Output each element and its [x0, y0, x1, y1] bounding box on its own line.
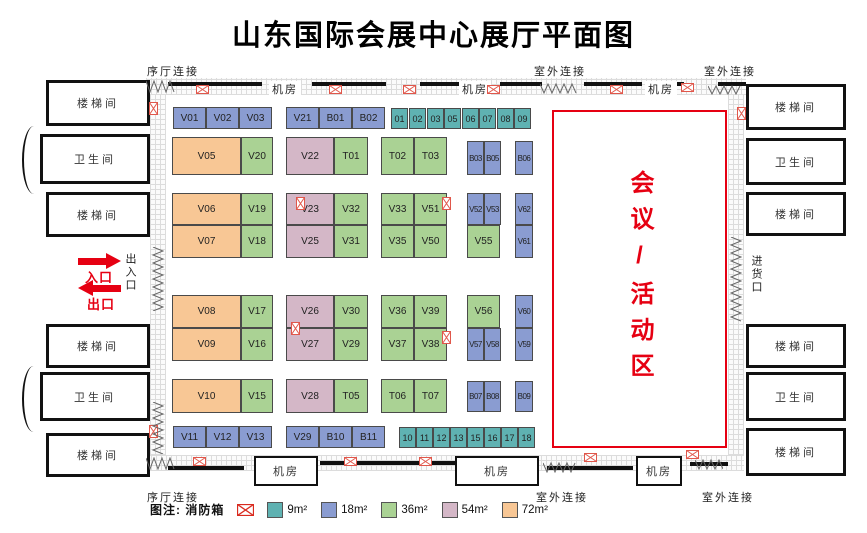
booth-b08[interactable]: B08 — [484, 381, 501, 412]
booth-b02[interactable]: B02 — [352, 107, 385, 129]
booth-v57[interactable]: V57 — [467, 328, 484, 361]
legend-label: 72m² — [522, 504, 548, 516]
fire-box-icon — [196, 85, 209, 94]
booth-15[interactable]: 15 — [467, 427, 484, 448]
booth-v08[interactable]: V08 — [172, 295, 241, 328]
booth-10[interactable]: 10 — [399, 427, 416, 448]
room-restroom-left-2: 卫生间 — [40, 372, 150, 421]
booth-v59[interactable]: V59 — [515, 328, 533, 361]
booth-18[interactable]: 18 — [518, 427, 535, 448]
booth-b01[interactable]: B01 — [319, 107, 352, 129]
legend-swatch — [442, 502, 458, 518]
booth-t06[interactable]: T06 — [381, 379, 414, 413]
fire-box-icon — [737, 107, 746, 120]
booth-b10[interactable]: B10 — [319, 426, 352, 448]
booth-17[interactable]: 17 — [501, 427, 518, 448]
booth-v17[interactable]: V17 — [241, 295, 273, 328]
booth-v11[interactable]: V11 — [173, 426, 206, 448]
booth-16[interactable]: 16 — [484, 427, 501, 448]
booth-v13[interactable]: V13 — [239, 426, 272, 448]
fire-box-icon — [584, 453, 597, 462]
booth-v61[interactable]: V61 — [515, 225, 533, 258]
legend-label: 18m² — [341, 504, 367, 516]
booth-02[interactable]: 02 — [409, 108, 426, 129]
booth-b03[interactable]: B03 — [467, 141, 484, 175]
booth-t07[interactable]: T07 — [414, 379, 447, 413]
booth-t01[interactable]: T01 — [334, 137, 368, 175]
machine-room-box: 机房 — [636, 456, 682, 486]
entrance-exit-label: 出入口 — [122, 253, 138, 292]
booth-v60[interactable]: V60 — [515, 295, 533, 328]
booth-05[interactable]: 05 — [444, 108, 461, 129]
room-restroom-right-2: 卫生间 — [746, 372, 846, 421]
booth-12[interactable]: 12 — [433, 427, 450, 448]
legend-swatch — [267, 502, 283, 518]
fire-box-icon — [681, 83, 694, 92]
booth-v12[interactable]: V12 — [206, 426, 239, 448]
booth-v05[interactable]: V05 — [172, 137, 241, 175]
legend-item-9m²: 9m² — [267, 502, 307, 518]
booth-v36[interactable]: V36 — [381, 295, 414, 328]
room-restroom-right-1: 卫生间 — [746, 138, 846, 185]
fire-box-icon — [344, 457, 357, 466]
label-outdoor-connect-bottom-2: 室外连接 — [702, 489, 754, 505]
legend-item-54m²: 54m² — [442, 502, 488, 518]
booth-v53[interactable]: V53 — [484, 193, 501, 225]
machine-room-box: 机房 — [455, 456, 539, 486]
legend-swatch — [381, 502, 397, 518]
booth-v58[interactable]: V58 — [484, 328, 501, 361]
legend-label: 54m² — [462, 504, 488, 516]
wall-segment — [320, 461, 456, 465]
booth-v23[interactable]: V23 — [286, 193, 334, 225]
floor-plan: 山东国际会展中心展厅平面图 会议/活动区 入口 出口 图注: 消防箱 9m²18… — [0, 0, 867, 533]
legend-swatch — [321, 502, 337, 518]
booth-v62[interactable]: V62 — [515, 193, 533, 225]
booth-v20[interactable]: V20 — [241, 137, 273, 175]
booth-08[interactable]: 08 — [497, 108, 514, 129]
booth-v16[interactable]: V16 — [241, 328, 273, 361]
wall-segment — [168, 82, 262, 86]
booth-v28[interactable]: V28 — [286, 379, 334, 413]
legend-label: 9m² — [287, 504, 307, 516]
fire-box-icon — [403, 85, 416, 94]
connector-zigzag — [543, 462, 577, 473]
booth-b09[interactable]: B09 — [515, 381, 533, 412]
booth-v15[interactable]: V15 — [241, 379, 273, 413]
fire-box-icon — [442, 331, 451, 344]
booth-v22[interactable]: V22 — [286, 137, 334, 175]
goods-entrance-label: 进货口 — [748, 255, 764, 294]
label-outdoor-connect-bottom-1: 室外连接 — [536, 489, 588, 505]
conference-activity-area: 会议/活动区 — [552, 110, 727, 448]
connector-zigzag — [152, 247, 164, 311]
booth-v31[interactable]: V31 — [334, 225, 368, 258]
connector-zigzag — [708, 85, 742, 95]
booth-01[interactable]: 01 — [391, 108, 408, 129]
booth-07[interactable]: 07 — [479, 108, 496, 129]
room-stairs-left-3: 楼梯间 — [46, 324, 150, 368]
legend-item-18m²: 18m² — [321, 502, 367, 518]
fire-box-icon — [487, 85, 500, 94]
booth-b07[interactable]: B07 — [467, 381, 484, 412]
connector-zigzag — [540, 83, 578, 94]
exit-arrow-icon — [93, 285, 121, 292]
booth-v55[interactable]: V55 — [467, 225, 500, 258]
booth-v18[interactable]: V18 — [241, 225, 273, 258]
wall-bracket — [22, 366, 38, 432]
fire-box-icon — [610, 85, 623, 94]
wall-segment — [168, 466, 244, 470]
booth-09[interactable]: 09 — [514, 108, 531, 129]
fire-box-icon — [149, 102, 158, 115]
exit-label: 出口 — [87, 294, 115, 313]
booth-v02[interactable]: V02 — [206, 107, 239, 129]
booth-v56[interactable]: V56 — [467, 295, 500, 328]
label-machine-room-top-1: 机房 — [269, 81, 301, 97]
wall-segment — [312, 82, 386, 86]
label-lobby-connect-bottom: 序厅连接 — [147, 489, 199, 505]
legend-item-36m²: 36m² — [381, 502, 427, 518]
fire-box-icon — [419, 457, 432, 466]
entrance-label: 入口 — [85, 267, 113, 286]
booth-v52[interactable]: V52 — [467, 193, 484, 225]
booth-v33[interactable]: V33 — [381, 193, 414, 225]
booth-v06[interactable]: V06 — [172, 193, 241, 225]
booth-v30[interactable]: V30 — [334, 295, 368, 328]
fire-box-icon — [237, 504, 254, 516]
booth-v39[interactable]: V39 — [414, 295, 447, 328]
booth-11[interactable]: 11 — [416, 427, 433, 448]
fire-box-icon — [329, 85, 342, 94]
booth-t05[interactable]: T05 — [334, 379, 368, 413]
fire-box-icon — [193, 457, 206, 466]
booth-06[interactable]: 06 — [462, 108, 479, 129]
room-restroom-left-1: 卫生间 — [40, 134, 150, 184]
booth-03[interactable]: 03 — [427, 108, 444, 129]
wall-segment — [500, 82, 542, 86]
booth-v29[interactable]: V29 — [334, 328, 368, 361]
legend-swatch — [502, 502, 518, 518]
booth-v32[interactable]: V32 — [334, 193, 368, 225]
booth-v10[interactable]: V10 — [172, 379, 241, 413]
booth-b11[interactable]: B11 — [352, 426, 385, 448]
connector-zigzag — [152, 402, 164, 454]
connector-zigzag — [695, 459, 723, 470]
fire-box-icon — [442, 197, 451, 210]
room-stairs-left-4: 楼梯间 — [46, 433, 150, 477]
entrance-arrow-icon — [78, 258, 106, 265]
booth-v50[interactable]: V50 — [414, 225, 447, 258]
booth-b06[interactable]: B06 — [515, 141, 533, 175]
booth-t02[interactable]: T02 — [381, 137, 414, 175]
booth-v07[interactable]: V07 — [172, 225, 241, 258]
booth-13[interactable]: 13 — [450, 427, 467, 448]
room-stairs-left-1: 楼梯间 — [46, 80, 150, 126]
fire-box-icon — [686, 450, 699, 459]
connector-zigzag — [730, 237, 742, 323]
label-outdoor-connect-top-2: 室外连接 — [704, 63, 756, 79]
label-lobby-connect-top: 序厅连接 — [147, 63, 199, 79]
booth-v03[interactable]: V03 — [239, 107, 272, 129]
legend-label: 36m² — [401, 504, 427, 516]
connector-zigzag — [146, 457, 176, 470]
room-stairs-right-3: 楼梯间 — [746, 324, 846, 368]
conference-activity-label: 会议/活动区 — [622, 170, 657, 389]
booth-b05[interactable]: B05 — [484, 141, 501, 175]
machine-room-box: 机房 — [254, 456, 318, 486]
label-machine-room-top-3: 机房 — [645, 81, 677, 97]
room-stairs-right-4: 楼梯间 — [746, 428, 846, 476]
fire-box-icon — [296, 197, 305, 210]
fire-box-icon — [291, 322, 300, 335]
legend: 图注: 消防箱 9m²18m²36m²54m²72m² — [150, 501, 548, 518]
room-stairs-right-1: 楼梯间 — [746, 84, 846, 130]
booth-v25[interactable]: V25 — [286, 225, 334, 258]
room-stairs-left-2: 楼梯间 — [46, 192, 150, 237]
booth-v21[interactable]: V21 — [286, 107, 319, 129]
booth-v19[interactable]: V19 — [241, 193, 273, 225]
booth-v37[interactable]: V37 — [381, 328, 414, 361]
booth-v35[interactable]: V35 — [381, 225, 414, 258]
page-title: 山东国际会展中心展厅平面图 — [0, 12, 867, 54]
booth-v29[interactable]: V29 — [286, 426, 319, 448]
label-outdoor-connect-top-1: 室外连接 — [534, 63, 586, 79]
booth-t03[interactable]: T03 — [414, 137, 447, 175]
connector-zigzag — [146, 80, 176, 93]
wall-bracket — [22, 126, 38, 194]
room-stairs-right-2: 楼梯间 — [746, 192, 846, 236]
booth-v01[interactable]: V01 — [173, 107, 206, 129]
booth-v09[interactable]: V09 — [172, 328, 241, 361]
